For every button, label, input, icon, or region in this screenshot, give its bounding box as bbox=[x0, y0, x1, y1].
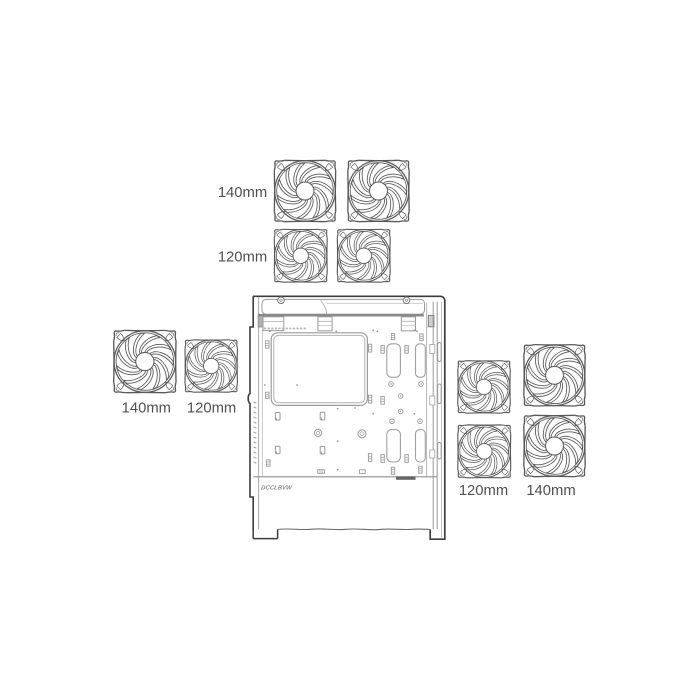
svg-text:140mm: 140mm bbox=[218, 185, 267, 201]
svg-text:120mm: 120mm bbox=[187, 400, 236, 416]
svg-text:120mm: 120mm bbox=[218, 250, 267, 266]
svg-text:140mm: 140mm bbox=[122, 400, 171, 416]
svg-text:140mm: 140mm bbox=[526, 483, 575, 499]
svg-text:120mm: 120mm bbox=[459, 483, 508, 499]
svg-text:DCCLBVW: DCCLBVW bbox=[261, 486, 294, 492]
